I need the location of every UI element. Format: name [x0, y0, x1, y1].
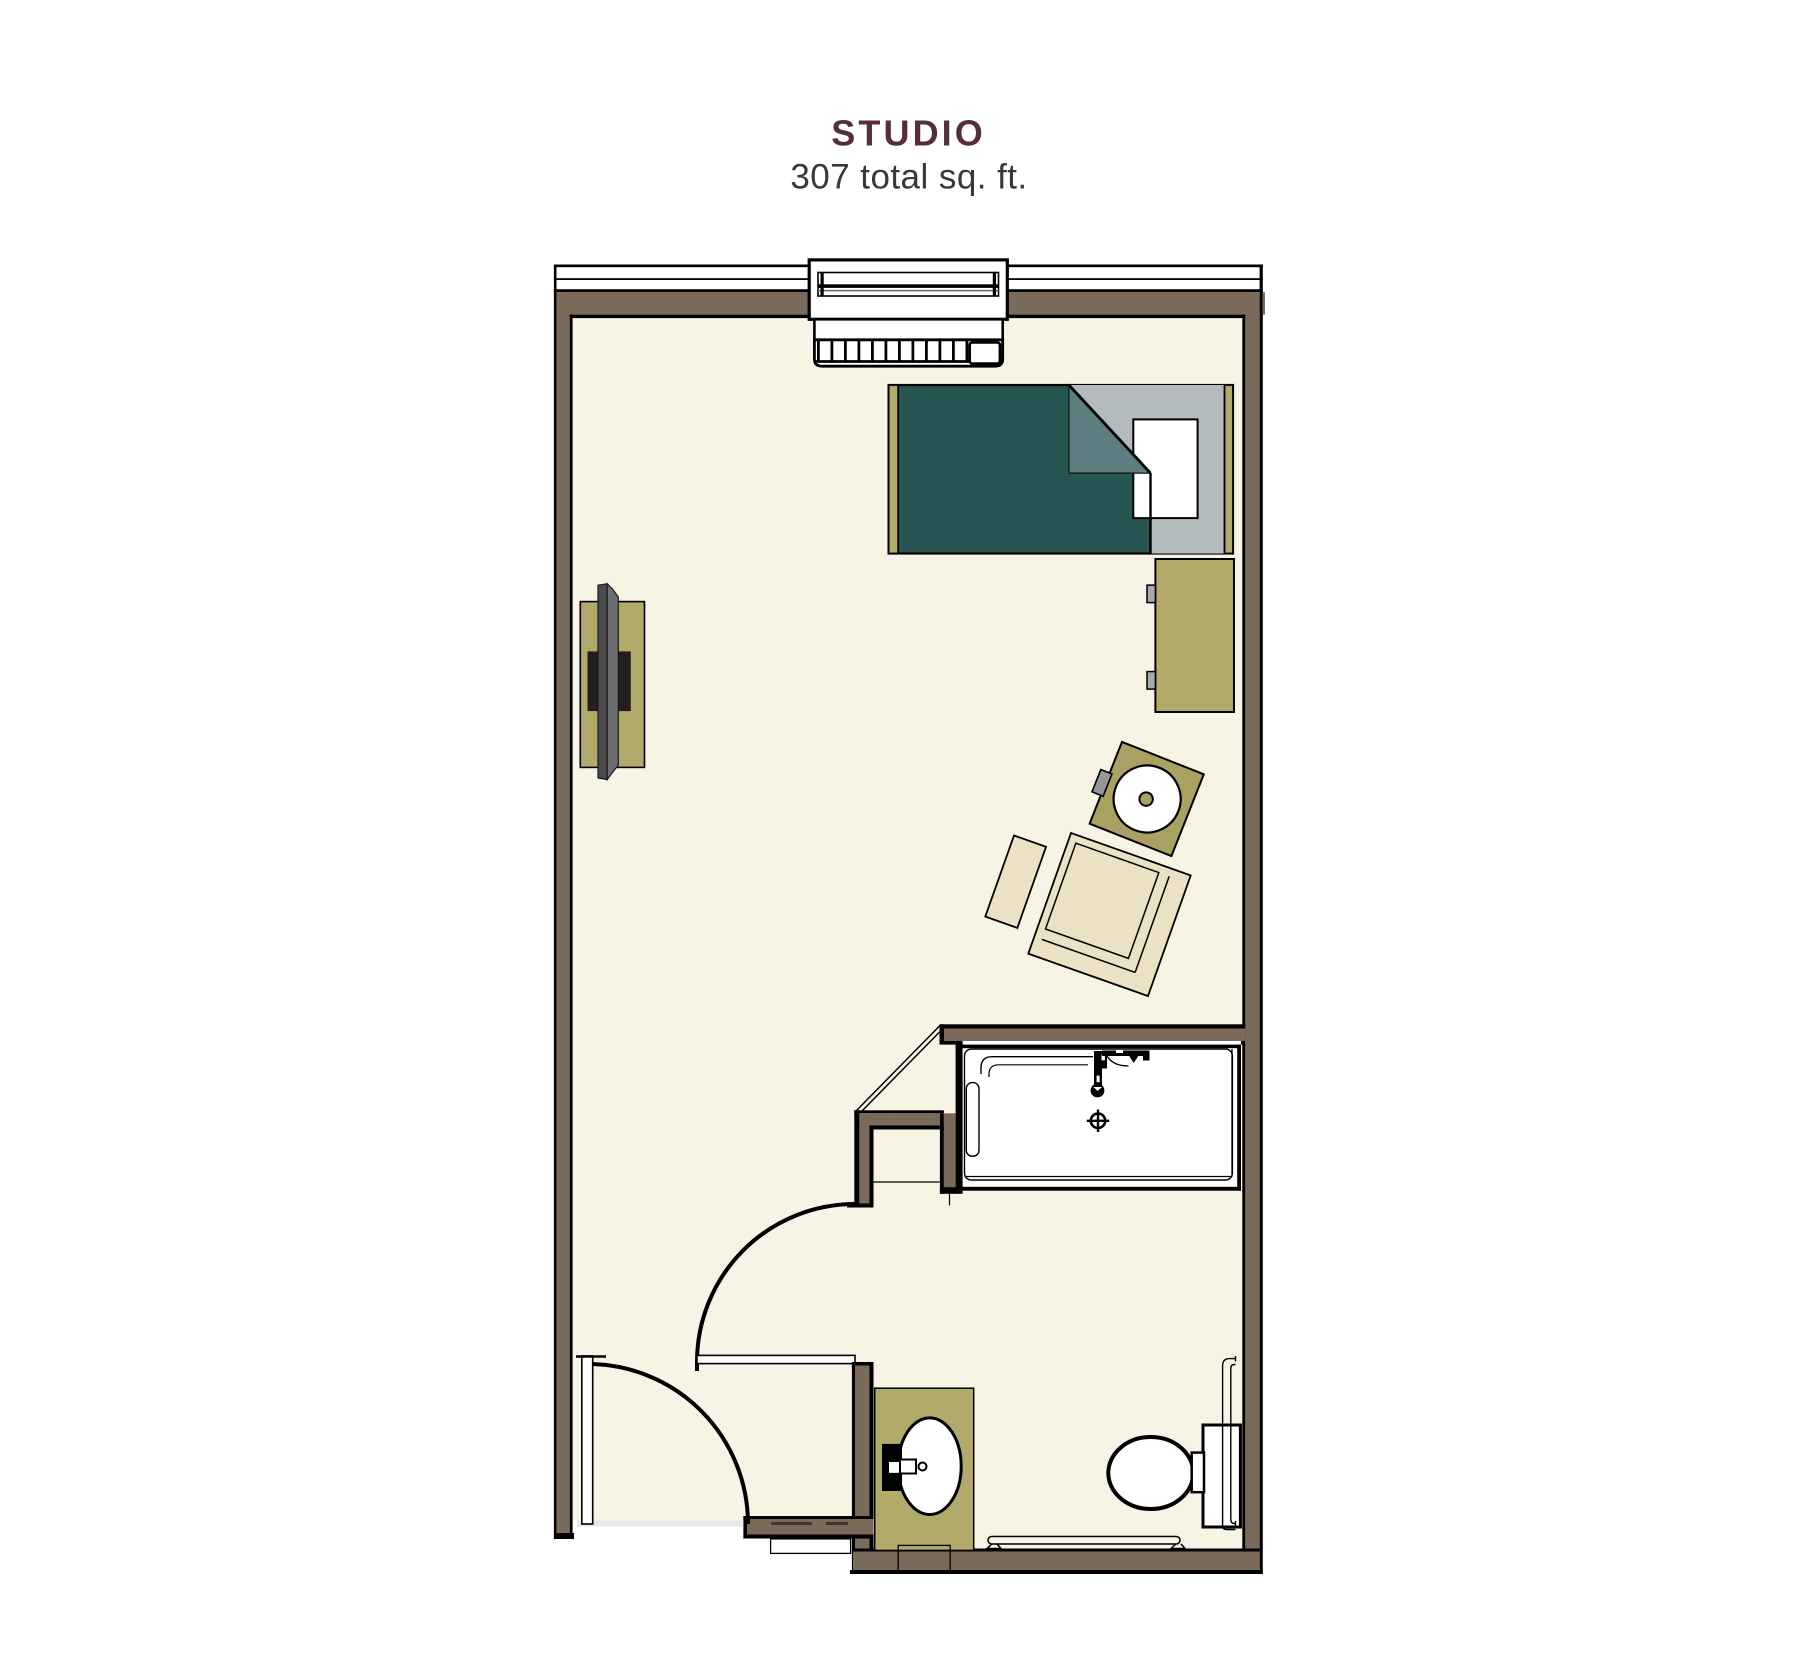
- svg-text:STUDIO: STUDIO: [831, 113, 986, 154]
- svg-text:307 total sq. ft.: 307 total sq. ft.: [790, 158, 1027, 197]
